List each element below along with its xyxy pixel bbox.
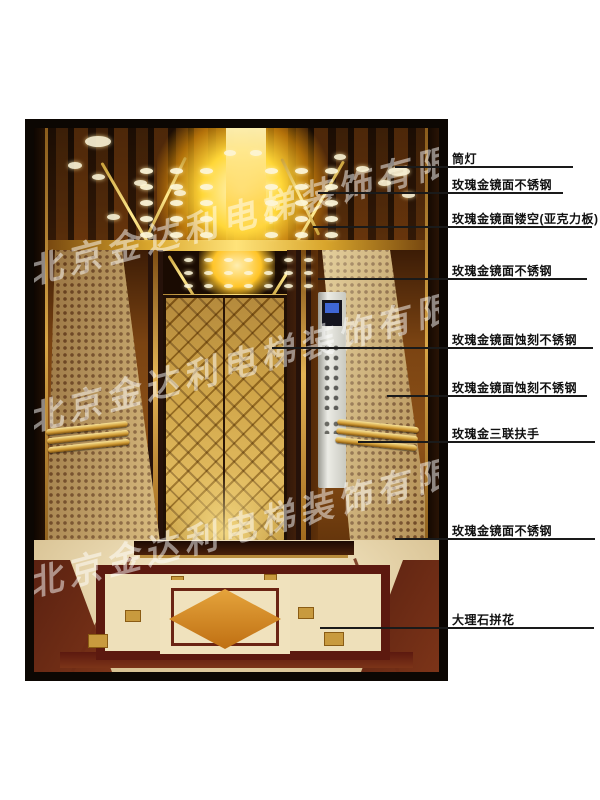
- annotated-elevator-figure: 北京金达利电梯装饰有限公司 北京金达利电梯装饰有限公司 北京金达利电梯装饰有限公…: [0, 0, 600, 800]
- front-pilaster-left: [34, 128, 48, 560]
- floor-gold-inlay: [88, 634, 108, 648]
- right-door-jamb: [296, 250, 311, 560]
- floor-buttons: [323, 344, 341, 410]
- elevator-photo: 北京金达利电梯装饰有限公司 北京金达利电梯装饰有限公司 北京金达利电梯装饰有限公…: [34, 128, 439, 672]
- annotation-label: 玫瑰金镜面不锈钢: [452, 262, 552, 279]
- floor-indicator-display: [322, 300, 342, 326]
- annotation-label: 玫瑰金镜面不锈钢: [452, 176, 552, 193]
- door-sill: [134, 541, 354, 555]
- door-bottom-glow: [167, 473, 283, 548]
- annotation-label: 大理石拼花: [452, 611, 515, 628]
- annotation-label: 玫瑰金三联扶手: [452, 425, 540, 442]
- floor-gold-inlay: [298, 607, 314, 619]
- sill-gold-trim: [140, 555, 348, 558]
- ceiling-light-column: [226, 128, 266, 253]
- floor-gold-inlay: [324, 632, 344, 646]
- annotation-label: 玫瑰金镜面镂空(亚克力板): [452, 210, 599, 227]
- floor-gold-inlay: [125, 610, 141, 622]
- annotation-label: 筒灯: [452, 150, 477, 167]
- cop-panel: [318, 292, 346, 488]
- annotation-label: 玫瑰金镜面不锈钢: [452, 522, 552, 539]
- annotation-label: 玫瑰金镜面蚀刻不锈钢: [452, 379, 577, 396]
- indicator-screen: [325, 303, 339, 313]
- photo-frame: 北京金达利电梯装饰有限公司 北京金达利电梯装饰有限公司 北京金达利电梯装饰有限公…: [25, 119, 448, 681]
- annotation-label: 玫瑰金镜面蚀刻不锈钢: [452, 331, 577, 348]
- annotation-line: [395, 166, 573, 168]
